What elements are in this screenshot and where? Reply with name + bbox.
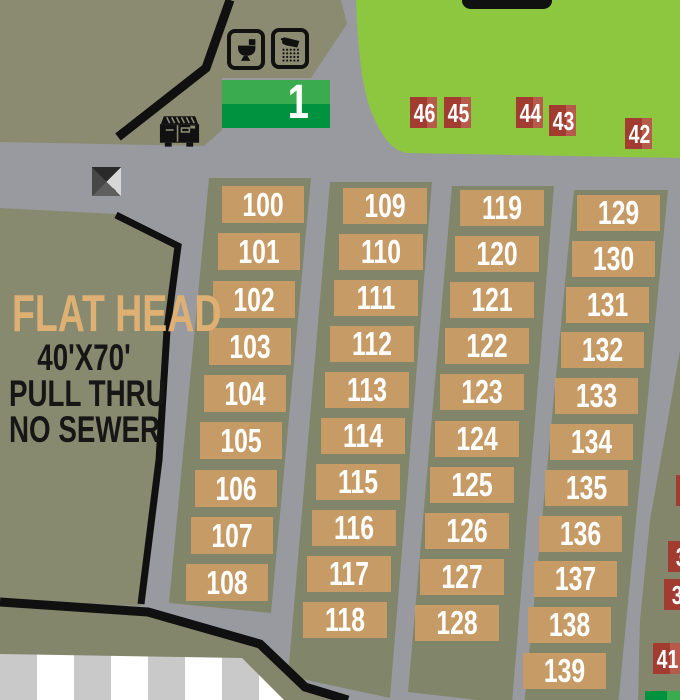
rv-site-129: 129 [577,195,660,231]
rv-site-101: 101 [218,233,300,270]
tent-site-3: 3 [664,579,680,610]
tent-site-46: 46 [410,97,437,128]
dumpster-icon [157,112,202,153]
rv-site-109: 109 [343,188,427,224]
partial-green-sign-light [667,691,680,700]
rv-site-115: 115 [316,464,400,500]
rv-site-136: 136 [539,516,622,552]
toilet-icon [227,29,265,70]
rv-site-127: 127 [420,559,504,595]
rv-site-100: 100 [222,186,304,223]
rv-site-113: 113 [325,372,409,408]
rv-site-105: 105 [200,422,282,459]
rv-site-135: 135 [545,470,628,506]
area-access: PULL THRU [9,376,159,412]
rv-site-133: 133 [555,378,638,414]
campground-map: 1 FLAT HEAD 40'X70' PULL THRU [0,0,680,700]
area-1-number: 1 [287,80,308,126]
rv-site-112: 112 [330,326,414,362]
rv-site-123: 123 [440,374,524,410]
rv-site-124: 124 [435,421,519,457]
rv-site-134: 134 [550,424,633,460]
partial-green-sign [645,691,667,700]
tent-site-43: 43 [549,105,576,136]
shower-icon [271,28,309,69]
area-sewer-note: NO SEWER [9,412,159,448]
area-dimensions: 40'X70' [9,340,159,376]
rv-site-106: 106 [195,470,277,507]
tent-site-42: 42 [625,118,652,149]
pyramid-marker-icon [92,167,121,196]
rv-site-118: 118 [303,602,387,638]
rv-site-121: 121 [450,282,534,318]
tent-site-45: 45 [444,97,471,128]
rv-site-117: 117 [307,556,391,592]
rv-site-104: 104 [204,375,286,412]
rv-site-128: 128 [415,605,499,641]
rv-site-120: 120 [455,236,539,272]
rv-site-137: 137 [534,561,617,597]
rv-site-108: 108 [186,564,268,601]
rv-site-139: 139 [523,653,606,689]
tent-site-partial [676,475,680,506]
rv-site-111: 111 [334,280,418,316]
rv-site-102: 102 [213,281,295,318]
rv-site-110: 110 [339,234,423,270]
rv-site-114: 114 [321,418,405,454]
area-1-sign: 1 [222,80,330,128]
building-tab [462,0,552,9]
area-title: FLAT HEAD [12,288,156,340]
rv-site-138: 138 [528,607,611,643]
tent-site-41: 41 [653,643,680,674]
rv-site-107: 107 [191,517,273,554]
rv-site-132: 132 [561,332,644,368]
rv-site-119: 119 [460,190,544,226]
area-label: FLAT HEAD 40'X70' PULL THRU NO SEWER [0,288,184,448]
rv-site-130: 130 [572,241,655,277]
rv-site-131: 131 [566,287,649,323]
rv-site-122: 122 [445,328,529,364]
rv-site-125: 125 [430,467,514,503]
rv-site-126: 126 [425,513,509,549]
tent-site-44: 44 [516,97,543,128]
tent-site-3: 3 [668,541,680,572]
rv-site-116: 116 [312,510,396,546]
